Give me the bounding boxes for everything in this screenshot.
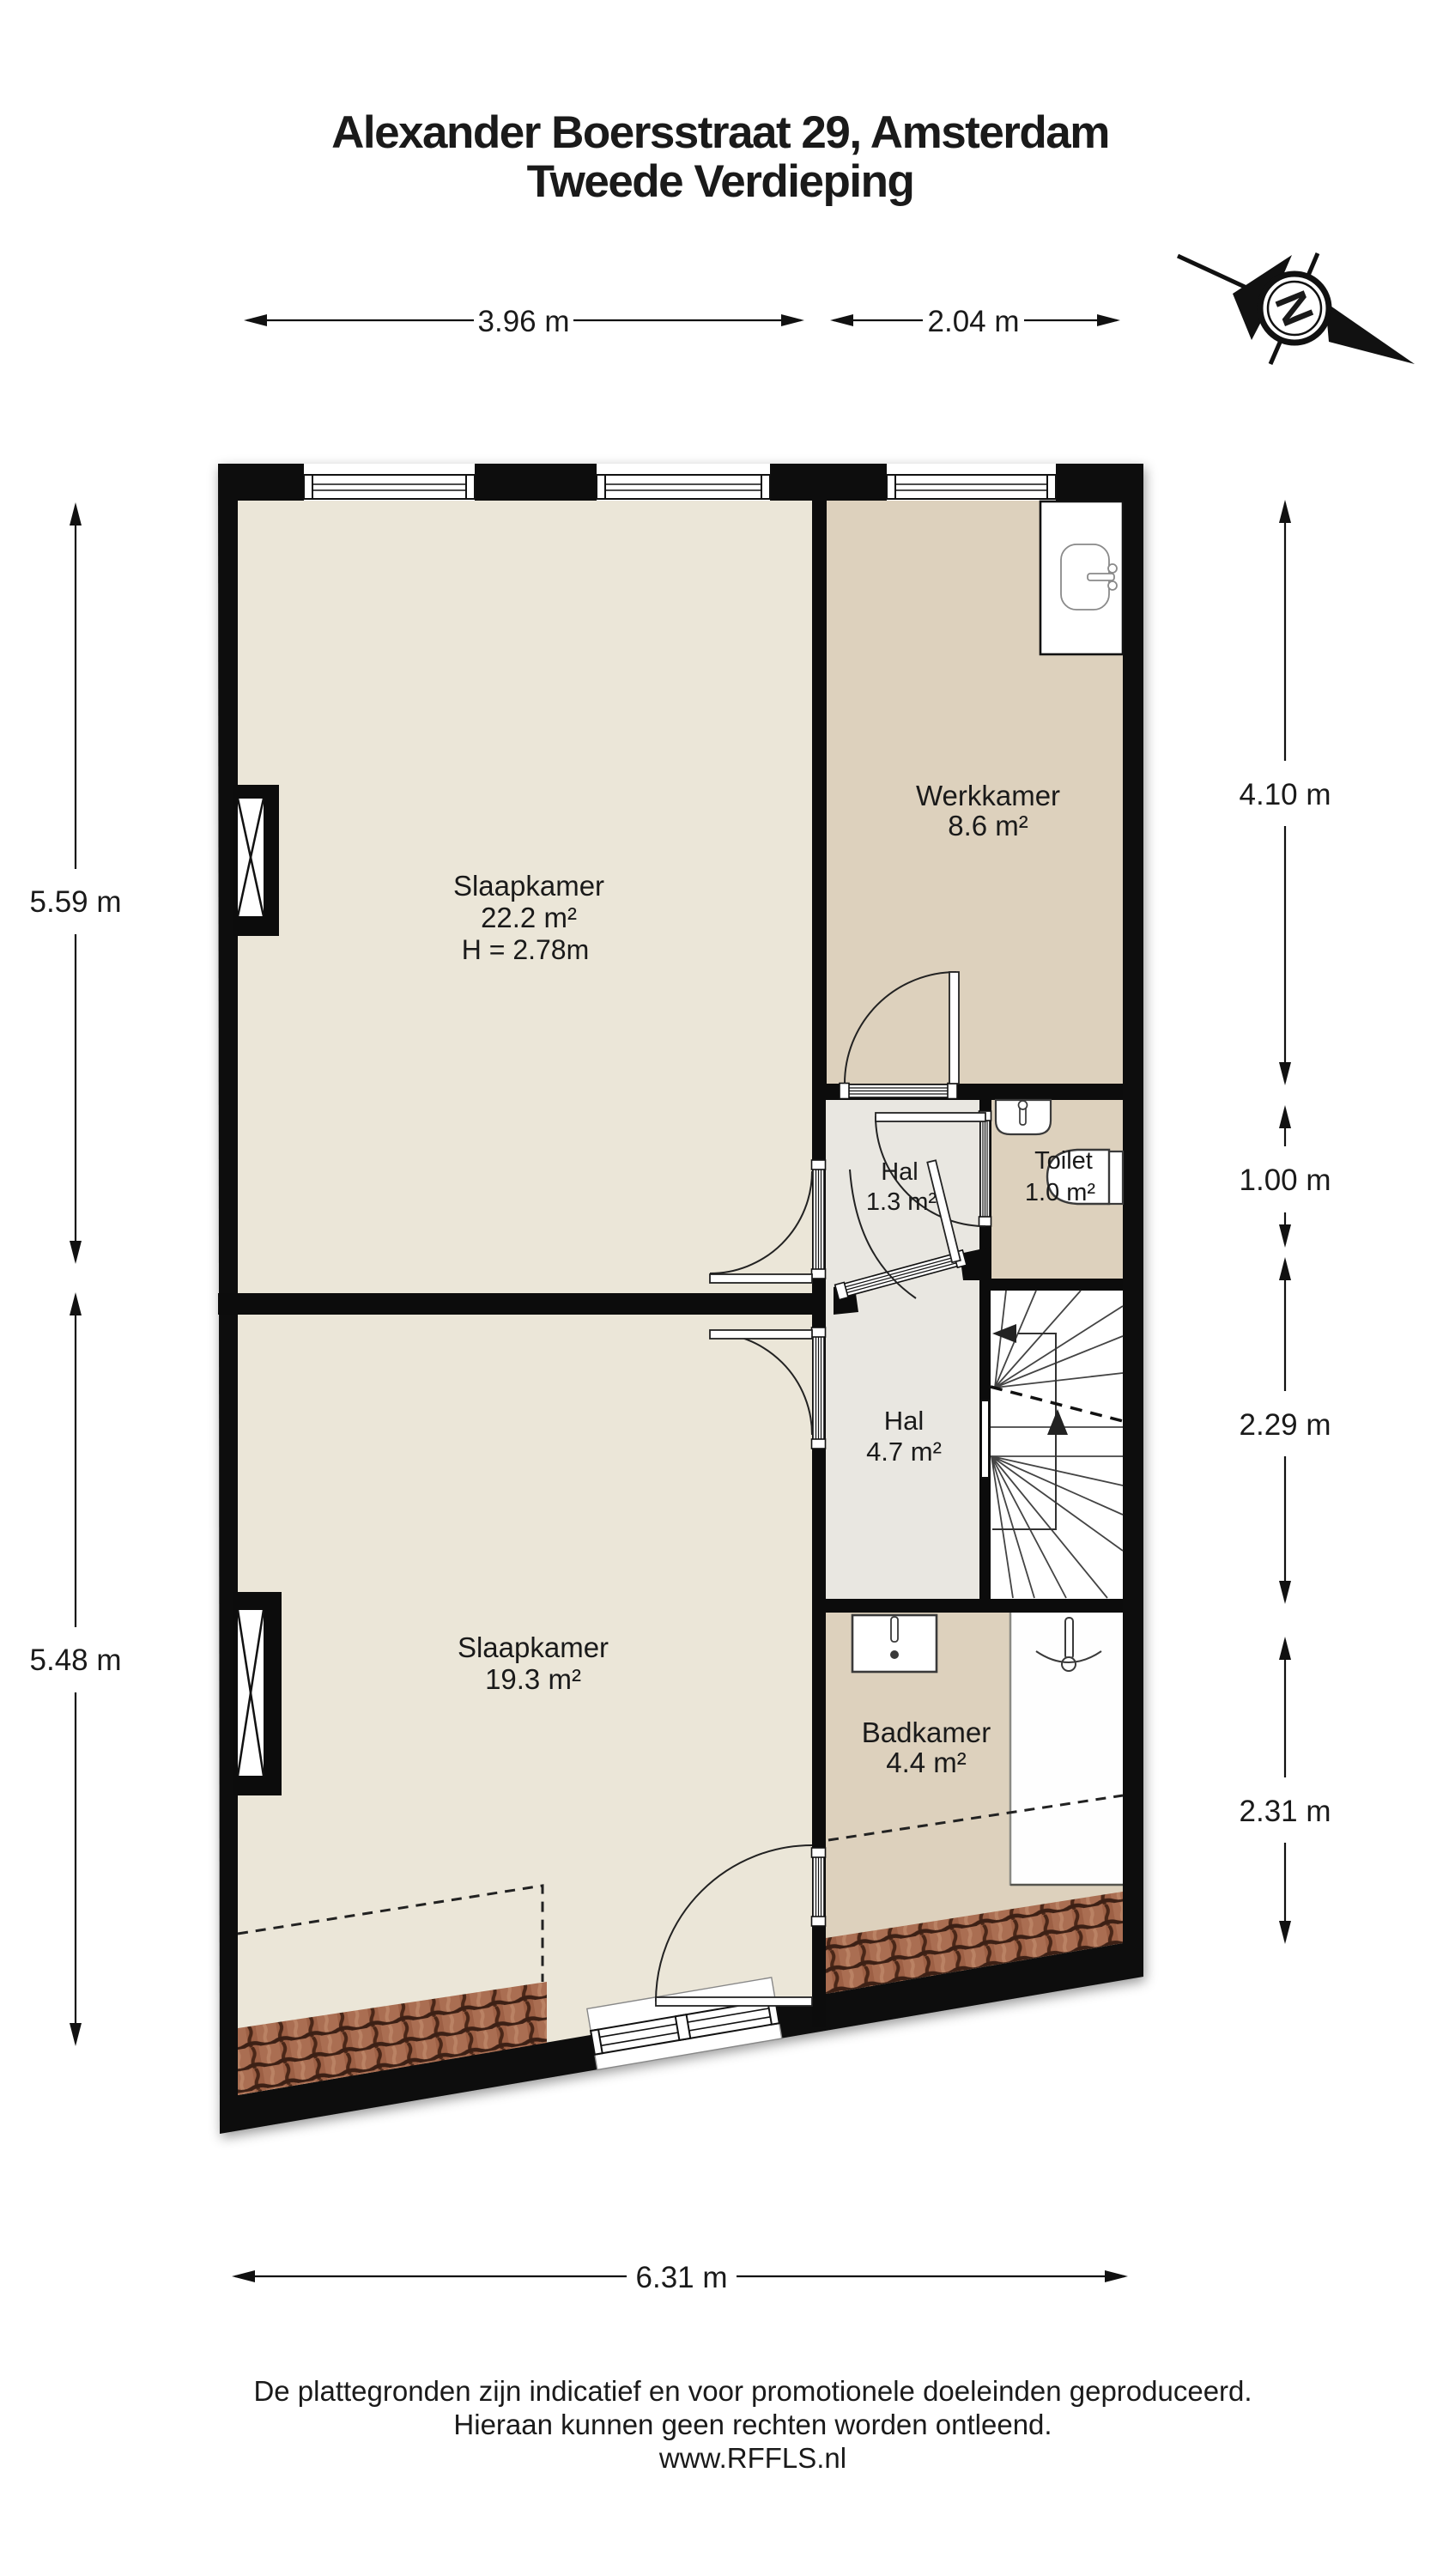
svg-text:H = 2.78m: H = 2.78m (462, 934, 590, 965)
svg-text:4.4 m²: 4.4 m² (886, 1747, 967, 1778)
svg-text:Slaapkamer: Slaapkamer (453, 870, 604, 902)
svg-text:Slaapkamer: Slaapkamer (458, 1631, 609, 1663)
svg-text:www.RFFLS.nl: www.RFFLS.nl (658, 2442, 846, 2474)
svg-text:19.3 m²: 19.3 m² (485, 1663, 581, 1695)
svg-text:1.00 m: 1.00 m (1240, 1163, 1331, 1197)
svg-text:Hal: Hal (884, 1406, 925, 1436)
svg-text:6.31 m: 6.31 m (636, 2261, 728, 2294)
svg-text:2.31 m: 2.31 m (1240, 1795, 1331, 1828)
svg-text:Hal: Hal (881, 1158, 919, 1186)
svg-text:22.2 m²: 22.2 m² (481, 902, 577, 933)
svg-text:Alexander Boersstraat 29, Amst: Alexander Boersstraat 29, Amsterdam (331, 107, 1109, 158)
svg-text:1.0 m²: 1.0 m² (1025, 1179, 1096, 1206)
svg-text:Toilet: Toilet (1034, 1147, 1093, 1175)
svg-text:2.04 m: 2.04 m (928, 305, 1020, 338)
svg-text:1.3 m²: 1.3 m² (866, 1188, 937, 1216)
svg-text:5.48 m: 5.48 m (30, 1643, 122, 1677)
svg-text:Werkkamer: Werkkamer (916, 780, 1060, 811)
svg-text:Badkamer: Badkamer (862, 1716, 991, 1748)
svg-text:4.10 m: 4.10 m (1240, 778, 1331, 811)
svg-text:3.96 m: 3.96 m (478, 305, 570, 338)
svg-text:Hieraan kunnen geen rechten wo: Hieraan kunnen geen rechten worden ontle… (453, 2409, 1052, 2440)
svg-text:Tweede Verdieping: Tweede Verdieping (527, 156, 914, 207)
svg-text:De plattegronden zijn indicati: De plattegronden zijn indicatief en voor… (253, 2375, 1252, 2407)
svg-text:5.59 m: 5.59 m (30, 885, 122, 919)
svg-text:2.29 m: 2.29 m (1240, 1408, 1331, 1442)
svg-text:4.7 m²: 4.7 m² (866, 1437, 942, 1467)
svg-text:8.6 m²: 8.6 m² (948, 810, 1028, 841)
